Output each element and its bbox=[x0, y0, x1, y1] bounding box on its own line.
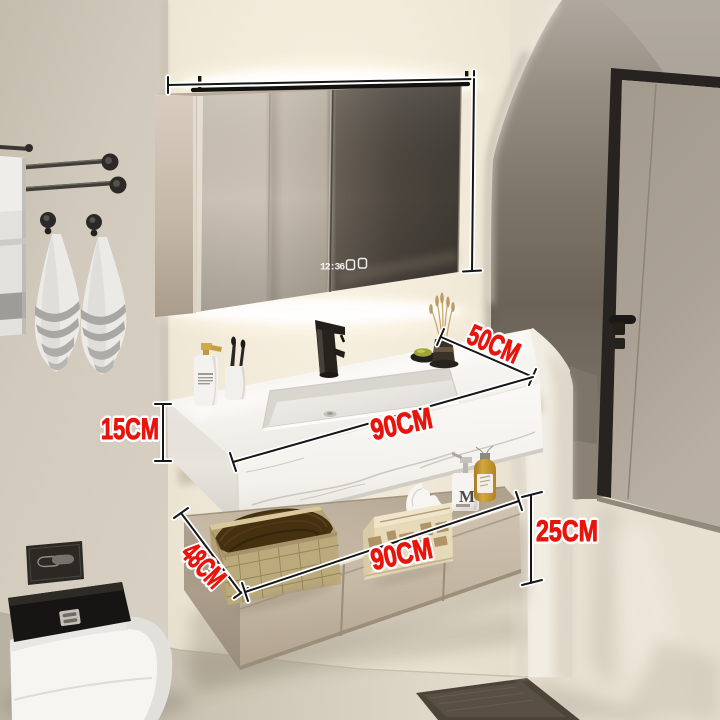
svg-text:12:36: 12:36 bbox=[320, 263, 345, 274]
svg-text:15CM: 15CM bbox=[101, 413, 159, 446]
svg-text:25CM: 25CM bbox=[536, 515, 598, 548]
svg-text:M: M bbox=[459, 487, 475, 506]
